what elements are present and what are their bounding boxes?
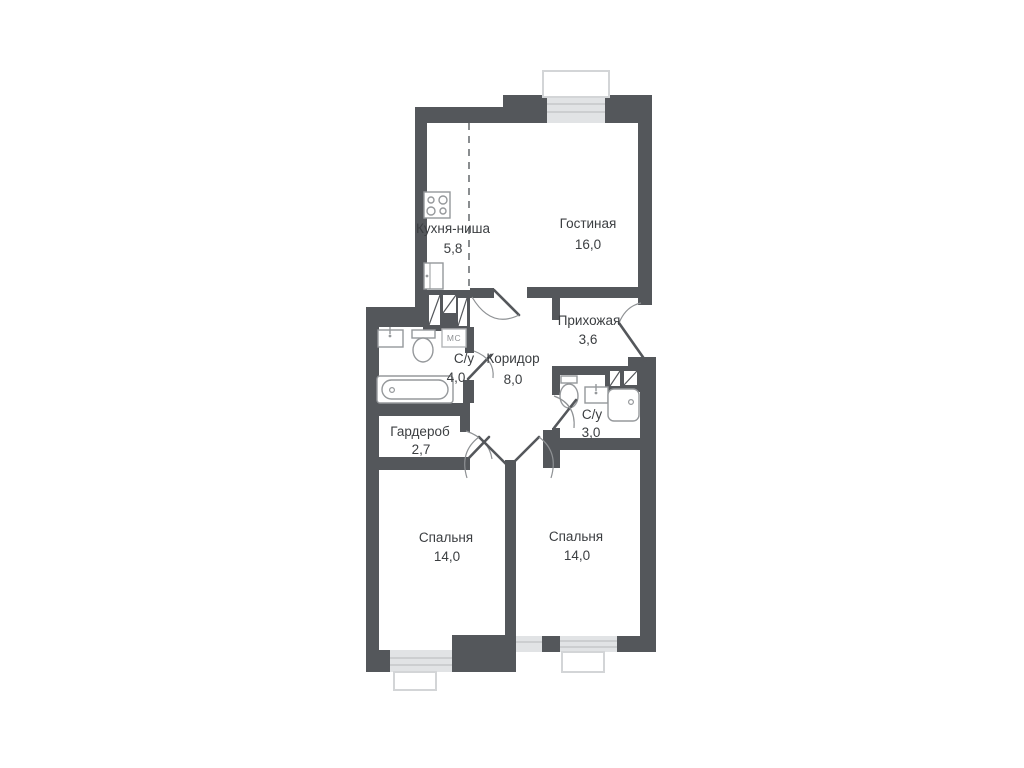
bedroom-right-corner-wall — [543, 430, 560, 468]
room-area-bedroom-right: 14,0 — [564, 548, 590, 563]
room-label-bathroom-small: С/у — [582, 407, 603, 422]
room-area-hallway: 3,6 — [579, 332, 598, 347]
door-entry — [619, 303, 645, 360]
room-area-bedroom-left: 14,0 — [434, 549, 460, 564]
bathtub-icon — [377, 376, 453, 403]
toilet-icon-bathroom-big — [412, 330, 435, 362]
bottom-wall-left-corner — [366, 650, 390, 672]
washing-machine-label: МС — [447, 333, 461, 343]
sink-icon-bathroom-big — [378, 327, 403, 347]
room-label-bedroom-left: Спальня — [419, 530, 473, 545]
bottom-wall-right-corner — [617, 636, 656, 652]
bathroom-big-bottom-wall — [366, 403, 470, 416]
vent-shaft-right — [605, 366, 647, 392]
right-wall-lower — [640, 357, 656, 652]
balcony-bottom-left — [394, 672, 436, 690]
room-label-bathroom-big: С/у — [454, 351, 475, 366]
living-hallway-wall — [527, 287, 638, 298]
bathroom-small-left-wall-upper — [552, 375, 560, 395]
room-label-hallway: Прихожая — [558, 313, 621, 328]
room-area-bathroom-big: 4,0 — [447, 370, 466, 385]
room-area-wardrobe: 2,7 — [412, 442, 431, 457]
inner-walls — [366, 287, 653, 650]
room-area-kitchen: 5,8 — [444, 241, 463, 256]
room-label-bedroom-right: Спальня — [549, 529, 603, 544]
room-label-living: Гостиная — [560, 216, 617, 231]
room-area-bathroom-small: 3,0 — [582, 425, 601, 440]
window-bedroom-left — [390, 650, 452, 672]
wardrobe-bedroom-wall — [366, 457, 470, 470]
corridor-door-jamb-wall — [470, 288, 494, 298]
room-area-corridor: 8,0 — [504, 372, 523, 387]
stove-icon — [424, 192, 450, 218]
window-living — [547, 95, 605, 123]
room-label-corridor: Коридор — [486, 351, 539, 366]
bottom-wall-pier — [542, 636, 560, 652]
top-wall-mid — [503, 95, 547, 123]
floor-plan-drawing: МС — [0, 0, 1024, 768]
bedrooms-divider-wall — [505, 460, 516, 650]
fridge-icon — [424, 263, 443, 289]
right-wall-upper — [638, 95, 652, 305]
washing-machine-box: МС — [442, 329, 466, 347]
balcony-top — [543, 71, 609, 97]
room-label-kitchen: Кухня-ниша — [416, 221, 490, 236]
toilet-icon-bathroom-small — [560, 376, 578, 408]
sink-icon-bathroom-small — [585, 384, 608, 403]
window-bedroom-right — [560, 636, 617, 652]
left-wall-lower — [366, 307, 379, 672]
wardrobe-right-wall-upper — [460, 416, 470, 432]
top-wall-left — [415, 107, 505, 123]
bathroom-small-bottom-wall — [552, 438, 653, 450]
window-bedroom-right-small — [516, 636, 542, 652]
vent-shaft-left — [423, 290, 470, 331]
balcony-bottom-right — [562, 652, 604, 672]
room-label-wardrobe: Гардероб — [390, 424, 450, 439]
shower-tray-icon — [608, 389, 639, 421]
floor-plan-page: МС — [0, 0, 1024, 768]
room-area-living: 16,0 — [575, 237, 601, 252]
